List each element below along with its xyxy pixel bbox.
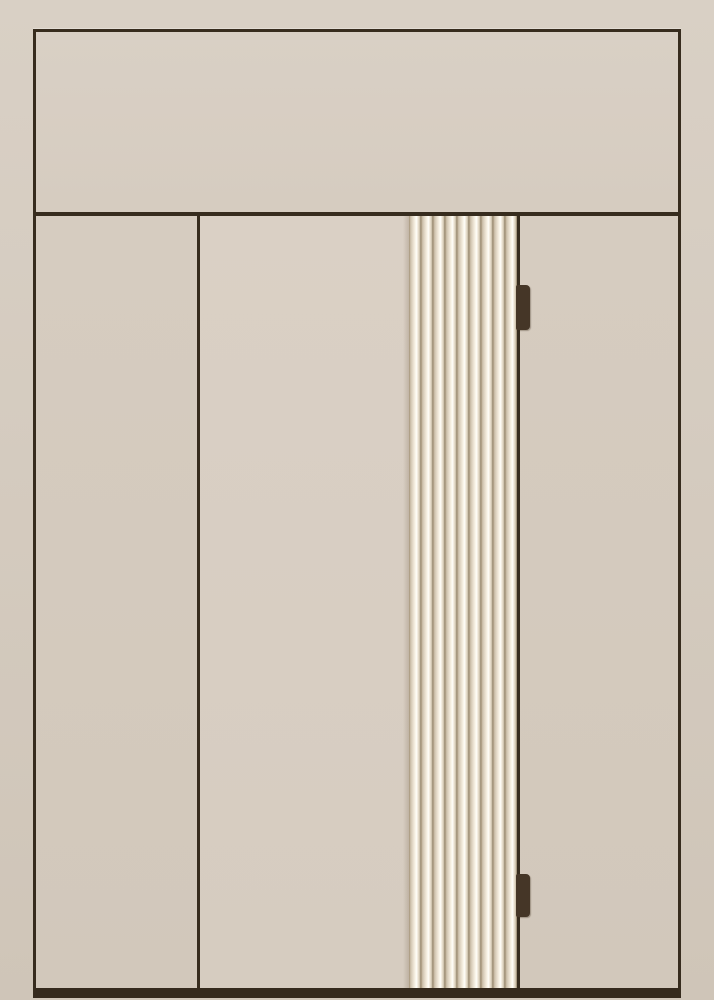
flute-ridge [481, 216, 493, 988]
door-hinge-top [516, 285, 530, 330]
left-sidelight-panel [36, 216, 197, 988]
flute-ridge [493, 216, 505, 988]
door-outer-frame [33, 29, 681, 998]
door-hinge-bottom [516, 874, 530, 917]
flute-ridge [469, 216, 481, 988]
flute-ridge [433, 216, 445, 988]
right-sidelight-panel [520, 216, 678, 988]
flute-ridge [421, 216, 433, 988]
door-lower-section [36, 216, 678, 988]
transom-panel [36, 32, 678, 212]
door-elevation-rendering [0, 0, 714, 1000]
fluted-panel [409, 216, 517, 988]
flute-ridge [445, 216, 457, 988]
flute-ridge [505, 216, 517, 988]
flute-ridge [457, 216, 469, 988]
flute-ridge [409, 216, 421, 988]
door-leaf-flat-section [200, 216, 409, 988]
door-frame-inner [36, 32, 678, 988]
